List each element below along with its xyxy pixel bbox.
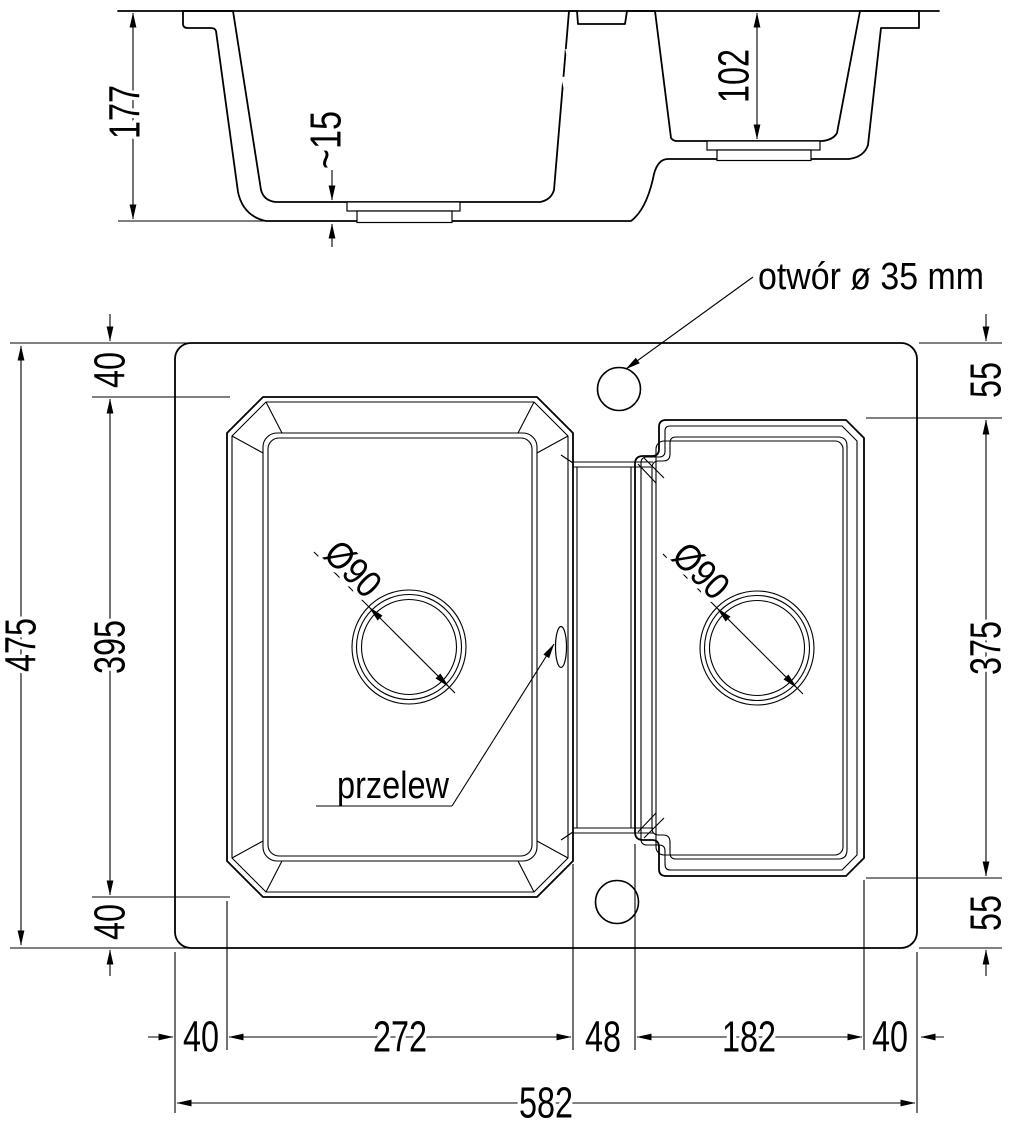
plan-view: Ø90 Ø90 przelew otwór ø 35 mm 475 [0, 256, 1011, 1128]
drain-left-dim: Ø90 [314, 533, 455, 693]
dim-depth-main: 177 [101, 85, 150, 139]
drain-recess-right-plate [707, 141, 820, 150]
divider [561, 455, 653, 840]
dim-bottom-divider: 48 [585, 1013, 621, 1062]
dim-bottom-margin-left: 40 [183, 1013, 219, 1062]
section-profile [183, 11, 919, 221]
bottom-dim-chain: 40 272 48 182 40 582 [148, 844, 944, 1128]
left-bowl [227, 397, 573, 897]
drain-recess-right-notch [717, 150, 811, 161]
faucet-hole-label: otwór ø 35 mm [758, 256, 984, 298]
dim-left-overall: 475 [0, 618, 46, 672]
faucet-hole-bottom [596, 881, 639, 924]
faucet-hole-leader [626, 277, 753, 369]
sink-outer-outline [175, 343, 917, 948]
dim-left-bottom: 40 [86, 904, 135, 940]
dim-bottom-margin-right: 40 [872, 1013, 908, 1062]
left-bowl-corner-edges [232, 402, 568, 892]
dim-right-bottom: 55 [962, 895, 1011, 931]
dim-bottom-overall: 582 [519, 1079, 573, 1128]
dim-left-middle: 395 [86, 620, 135, 674]
right-bowl-notch-edges [638, 458, 664, 838]
drain-recess-left-plate [347, 202, 460, 211]
section-view: 177 ~15 102 [101, 11, 940, 247]
section-break-band [565, 45, 587, 60]
right-dim-chain: 375 55 55 [866, 314, 1011, 976]
dim-bottom-bowl-right: 182 [722, 1013, 776, 1062]
overflow-leader [452, 644, 554, 806]
dim-bottom-bowl-left: 272 [373, 1013, 427, 1062]
dim-right-middle: 375 [962, 621, 1011, 675]
right-bowl-inner-edge2 [656, 441, 843, 855]
overflow-label: przelew [337, 765, 449, 807]
right-bowl [635, 420, 864, 876]
right-bowl-inner-edge [652, 437, 847, 859]
drain-diameter-left: Ø90 [316, 533, 390, 607]
right-bowl-rim-contour [641, 426, 857, 870]
dim-floor-thickness: ~15 [302, 111, 351, 169]
drain-recess-left-notch [357, 211, 452, 223]
faucet-hole-top [598, 368, 641, 411]
left-bowl-rim-contour [232, 402, 568, 892]
dim-depth-small: 102 [710, 49, 759, 103]
left-bowl-outer-rim [227, 397, 573, 897]
dim-right-top: 55 [962, 362, 1011, 398]
right-bowl-outer-rim [635, 420, 864, 876]
overflow-hole [556, 627, 567, 668]
drain-right-dim: Ø90 [663, 535, 803, 694]
drain-diameter-right: Ø90 [664, 535, 738, 609]
sink-technical-drawing: 177 ~15 102 [0, 0, 1011, 1131]
dim-left-top: 40 [86, 352, 135, 388]
